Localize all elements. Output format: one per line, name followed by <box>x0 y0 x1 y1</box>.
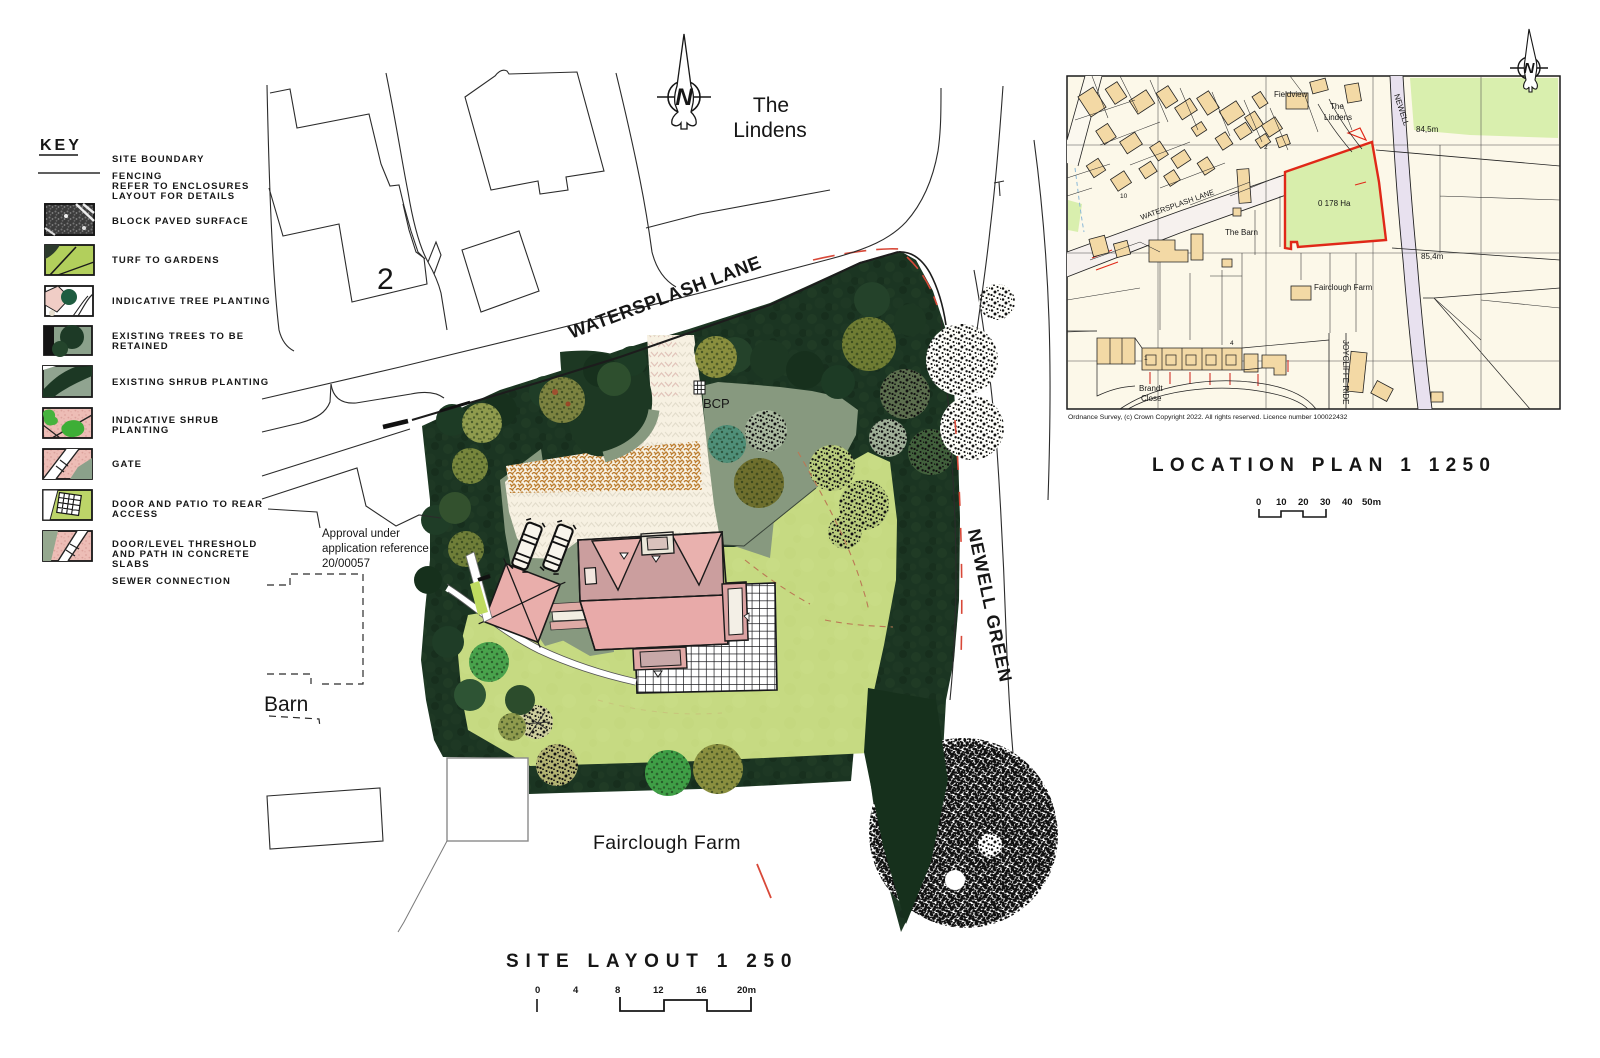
svg-text:TURF TO GARDENS: TURF TO GARDENS <box>112 255 220 266</box>
svg-text:SEWER CONNECTION: SEWER CONNECTION <box>112 576 231 587</box>
svg-text:INDICATIVE TREE PLANTING: INDICATIVE TREE PLANTING <box>112 296 271 307</box>
svg-text:GATE: GATE <box>112 459 142 470</box>
svg-text:10: 10 <box>1276 497 1287 508</box>
svg-text:The Barn: The Barn <box>1225 228 1258 237</box>
svg-text:20/00057: 20/00057 <box>322 558 370 570</box>
svg-text:Lindens: Lindens <box>733 119 807 142</box>
svg-text:1: 1 <box>1144 355 1148 362</box>
svg-text:8: 8 <box>615 985 620 996</box>
svg-text:4: 4 <box>573 985 579 996</box>
svg-text:Fairclough Farm: Fairclough Farm <box>1314 283 1373 292</box>
svg-text:Barn: Barn <box>264 693 308 716</box>
svg-text:ACCESS: ACCESS <box>112 509 158 520</box>
svg-text:Brandt: Brandt <box>1139 384 1163 393</box>
svg-text:Lindens: Lindens <box>1324 113 1352 122</box>
svg-text:20m: 20m <box>737 985 756 996</box>
svg-text:SLABS: SLABS <box>112 559 150 570</box>
svg-text:N: N <box>675 84 693 111</box>
svg-text:SITE LAYOUT 1 250: SITE LAYOUT 1 250 <box>506 951 798 972</box>
svg-text:Close: Close <box>1141 394 1162 403</box>
svg-text:30: 30 <box>1320 497 1331 508</box>
svg-text:The: The <box>753 94 789 117</box>
svg-text:LAYOUT FOR DETAILS: LAYOUT FOR DETAILS <box>112 191 235 202</box>
svg-text:Ordnance Survey, (c) Crown Cop: Ordnance Survey, (c) Crown Copyright 202… <box>1068 414 1348 421</box>
svg-text:0: 0 <box>1256 497 1261 508</box>
svg-text:85,4m: 85,4m <box>1421 252 1444 261</box>
svg-text:SITE BOUNDARY: SITE BOUNDARY <box>112 154 205 165</box>
svg-text:16: 16 <box>696 985 707 996</box>
svg-text:0: 0 <box>535 985 540 996</box>
svg-text:40: 40 <box>1342 497 1353 508</box>
svg-text:BCP: BCP <box>703 396 730 411</box>
svg-text:0 178 Ha: 0 178 Ha <box>1318 199 1351 208</box>
svg-text:RETAINED: RETAINED <box>112 341 169 352</box>
svg-text:2: 2 <box>1264 144 1268 151</box>
svg-text:10: 10 <box>1120 193 1128 200</box>
svg-text:KEY: KEY <box>40 137 82 154</box>
svg-text:Fieldview: Fieldview <box>1274 90 1308 99</box>
svg-text:EXISTING SHRUB PLANTING: EXISTING SHRUB PLANTING <box>112 377 269 388</box>
svg-text:N: N <box>1524 60 1536 77</box>
svg-text:Fairclough Farm: Fairclough Farm <box>593 832 741 854</box>
svg-text:20: 20 <box>1298 497 1309 508</box>
svg-text:4: 4 <box>1230 340 1234 347</box>
svg-text:84,5m: 84,5m <box>1416 125 1439 134</box>
svg-text:JOYCLIFFE RIDE: JOYCLIFFE RIDE <box>1341 340 1350 404</box>
svg-text:2: 2 <box>377 263 394 296</box>
svg-text:application reference: application reference <box>322 543 429 555</box>
svg-text:LOCATION PLAN 1 1250: LOCATION PLAN 1 1250 <box>1152 455 1496 476</box>
svg-text:The: The <box>1330 102 1344 111</box>
svg-text:12: 12 <box>653 985 664 996</box>
svg-text:BLOCK PAVED SURFACE: BLOCK PAVED SURFACE <box>112 216 249 227</box>
svg-text:Approval under: Approval under <box>322 528 400 540</box>
svg-text:PLANTING: PLANTING <box>112 425 169 436</box>
svg-text:50m: 50m <box>1362 497 1381 508</box>
